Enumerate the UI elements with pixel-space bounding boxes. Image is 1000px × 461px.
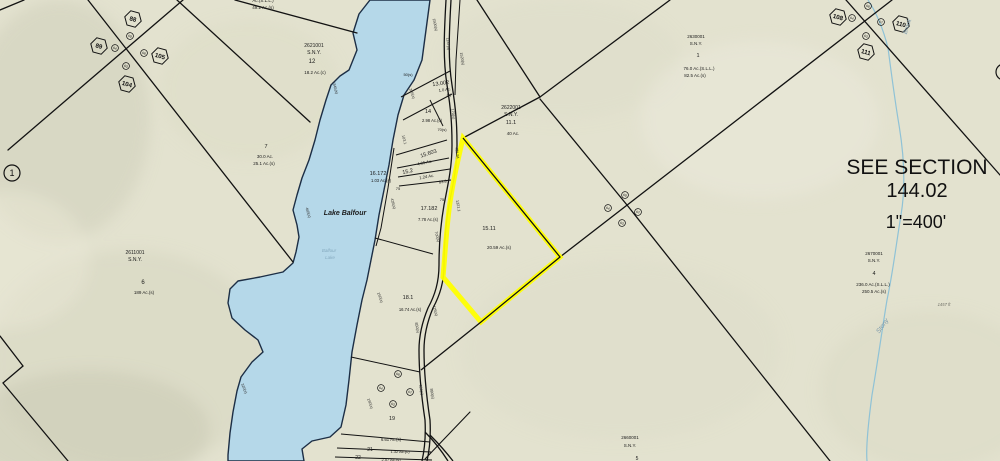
map-label: 1.32 Ac.(c) xyxy=(390,449,410,454)
map-label: 40 Ac. xyxy=(507,131,520,136)
map-label: 236.0 Ac.(S.L.L.) xyxy=(856,282,890,287)
map-label: 2660001 xyxy=(621,435,639,440)
svg-text:1: 1 xyxy=(9,168,14,178)
map-label: 2611001 xyxy=(125,250,144,256)
map-label: 12 xyxy=(309,59,316,65)
map-label: 7 xyxy=(264,144,267,150)
map-label: 49.2 Ac.(s) xyxy=(252,5,274,10)
map-label: Ac.(S.L.L.) xyxy=(252,0,274,3)
map-label: 75 xyxy=(440,197,445,202)
map-label: (s) xyxy=(447,92,452,97)
map-label: 19 xyxy=(389,416,395,422)
map-label: 15.11 xyxy=(482,226,495,232)
map-label: 189 Ac.(s) xyxy=(134,290,155,295)
map-label: 18.2 Ac.(c) xyxy=(304,70,326,75)
map-label: S.N.Y. xyxy=(690,41,702,46)
map-canvas: 8889105104108110111696468636469676368646… xyxy=(0,0,1000,461)
map-label: 7.78 Ac.(s) xyxy=(418,217,439,222)
map-label: 18.1 xyxy=(403,295,414,301)
map-label: 2670001 xyxy=(865,251,883,256)
map-label: 17.182 xyxy=(421,206,438,212)
map-label: 6.61 Ac.(s) xyxy=(381,437,402,442)
map-label: 14 xyxy=(425,109,431,115)
map-label: 1457 ft xyxy=(938,302,952,307)
map-label: 144.02 xyxy=(886,180,947,202)
map-label: 75 xyxy=(396,186,401,191)
map-label: 2622001 xyxy=(501,105,521,111)
map-label: 50(s) xyxy=(403,72,413,77)
map-label: 2630001 xyxy=(687,34,705,39)
map-label: 2.98 Ac.(c) xyxy=(422,118,443,123)
map-label: 2621001 xyxy=(304,43,324,49)
map-label: 30.0 Ac. xyxy=(257,154,273,159)
map-label: 16.172 xyxy=(370,171,387,177)
map-label: S.N.Y. xyxy=(624,443,636,448)
map-label: 25.1 Ac.(s) xyxy=(253,161,275,166)
map-label: S.N.Y. xyxy=(504,112,518,118)
map-label: 22 xyxy=(355,455,361,461)
map-label: S.N.Y. xyxy=(307,50,321,56)
map-label: Lake xyxy=(325,255,335,260)
tax-parcel-map: 8889105104108110111696468636469676368646… xyxy=(0,0,1000,461)
map-label: 250.5 Ac.(s) xyxy=(862,289,887,294)
map-label: 70(s) xyxy=(437,127,447,132)
map-label: 76.0 Ac.(S.L.L.) xyxy=(683,66,715,71)
map-label: SEE SECTION xyxy=(846,156,987,179)
map-label: 1.03 Ac.(s) xyxy=(371,178,392,183)
map-label: S.N.Y. xyxy=(128,257,142,263)
map-label: 16.74 Ac.(s) xyxy=(399,307,422,312)
map-label: 5 xyxy=(636,456,639,461)
map-label: Balfour xyxy=(322,248,337,253)
map-label: S.N.Y. xyxy=(868,258,880,263)
map-label: 2.57 Ac.(s) xyxy=(381,457,401,461)
map-label: 11.1 xyxy=(506,120,516,126)
map-label: 21 xyxy=(367,447,373,453)
map-label: 20.59 Ac.(s) xyxy=(487,245,512,250)
map-label: 1"=400' xyxy=(886,212,946,232)
map-label: 82.5 Ac.(s) xyxy=(684,73,706,78)
map-label: 4 xyxy=(872,271,875,277)
map-label: 1 xyxy=(696,53,699,59)
map-label: Lake Balfour xyxy=(324,210,368,217)
